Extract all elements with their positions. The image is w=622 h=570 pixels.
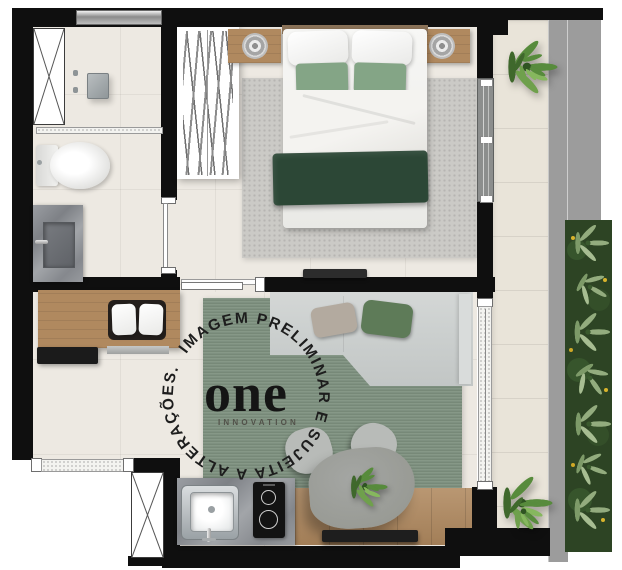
shower-head (87, 73, 109, 99)
cooktop-burner-2 (259, 510, 278, 529)
nightstand-lamp-right (429, 33, 455, 59)
shower-glass-partition (36, 127, 163, 134)
kitchen-sink (181, 485, 239, 540)
toilet (33, 140, 113, 190)
balcony-sliding-door-glass (478, 306, 492, 482)
kitchen-sink-drain (208, 506, 215, 513)
toilet-bowl (50, 142, 110, 189)
dining-plate-2 (138, 304, 163, 336)
kitchen-faucet-spout (202, 538, 216, 541)
bedroom-tv (303, 269, 367, 278)
toilet-flush-button (37, 160, 42, 165)
bedroom-window-frame (477, 78, 494, 202)
nightstand-lamp-left (242, 33, 268, 59)
bedroom-window-mullion-top (480, 79, 493, 87)
wall-bathroom-right-upper (161, 8, 177, 200)
bedroom-door-jamb (255, 277, 265, 292)
balcony-door-rail (485, 309, 486, 481)
shaft-duct-bathroom (33, 28, 65, 125)
bed-duvet-fold-1 (302, 94, 415, 125)
bed (282, 25, 428, 229)
dining-bench (37, 347, 98, 364)
bed-blanket (272, 150, 428, 205)
railing-line (567, 20, 568, 232)
sofa-armrest (459, 294, 471, 384)
bedroom-window-mullion-bottom (480, 195, 493, 203)
floorplan: IMAGEM PRELIMINAR E SUJEITA A ALTERAÇÕES… (0, 0, 622, 570)
wall-shaft-top-edge (133, 458, 166, 472)
kitchen-window-jamb-right (123, 458, 134, 472)
dining-drawer (107, 346, 169, 354)
wall-left (12, 8, 33, 460)
wall-right-top (477, 27, 493, 80)
bathroom-door-jamb-bottom (161, 267, 176, 274)
balcony-plant-bottom (490, 468, 554, 544)
vanity-faucet (35, 240, 48, 244)
bedroom-window-glass-line2 (488, 83, 489, 199)
shower-knob-1 (73, 70, 78, 76)
bed-pillow-green-1 (296, 62, 349, 93)
closet-rod (207, 30, 208, 176)
closet-hangers (183, 31, 233, 175)
tv-console (322, 530, 418, 542)
bathroom-sliding-door (163, 203, 168, 269)
wall-bottom-main (164, 546, 460, 568)
wall-divider-right (262, 277, 495, 292)
bedroom-window-glass-line (483, 83, 484, 199)
cooktop-controls (263, 484, 275, 486)
shaft-duct-kitchen (131, 472, 164, 558)
sofa-pillow-green (360, 299, 414, 339)
vertical-garden (565, 220, 612, 552)
coffee-table-plant (340, 462, 390, 512)
bed-pillow-white-2 (351, 30, 412, 66)
shower-knob-2 (73, 87, 78, 93)
cooktop-burner-1 (261, 490, 276, 505)
bathroom-window (76, 10, 162, 25)
vanity-sink-basin (43, 222, 75, 268)
bathroom-vanity (33, 205, 83, 282)
dining-plate-1 (111, 304, 136, 336)
bed-pillow-green-2 (354, 62, 407, 93)
sofa (270, 292, 473, 386)
kitchen-window-glass (41, 459, 124, 472)
bedroom-pocket-door-panel (181, 282, 243, 290)
bed-duvet-fold-2 (289, 120, 388, 139)
bedroom-window-mullion-mid (480, 136, 493, 144)
balcony-plant-top (494, 34, 560, 102)
cooktop (253, 482, 285, 538)
wall-right-mid (477, 200, 493, 305)
bed-pillow-white-1 (287, 30, 348, 66)
